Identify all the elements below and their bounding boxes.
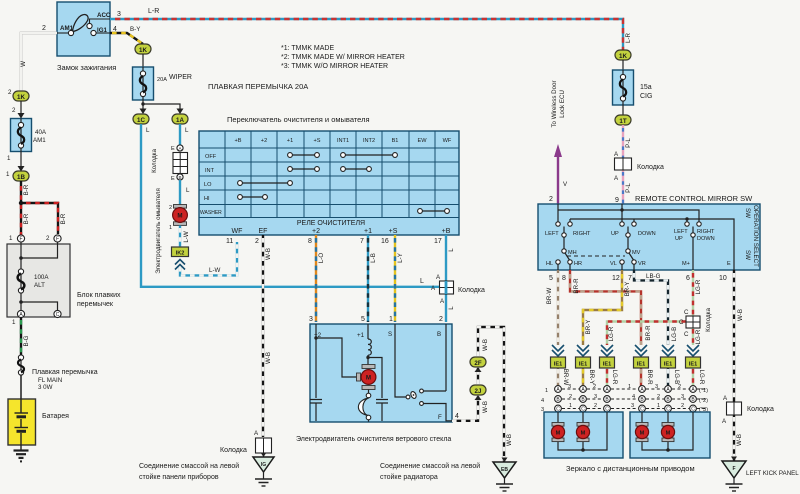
svg-text:16: 16 <box>381 238 389 245</box>
svg-text:E: E <box>171 146 175 152</box>
svg-text:1K: 1K <box>619 53 627 60</box>
svg-text:W-B: W-B <box>482 339 489 351</box>
svg-text:*2: TMMK MADE W/ MIRROR HEATER: *2: TMMK MADE W/ MIRROR HEATER <box>281 54 405 61</box>
svg-text:9: 9 <box>615 197 619 204</box>
svg-text:8: 8 <box>562 275 566 282</box>
svg-text:17: 17 <box>434 238 442 245</box>
svg-text:40A: 40A <box>35 129 47 136</box>
svg-text:To Wireless Door: To Wireless Door <box>551 80 558 127</box>
svg-text:3: 3 <box>631 403 634 409</box>
svg-text:1C: 1C <box>137 117 145 124</box>
svg-text:HR: HR <box>574 261 582 267</box>
svg-text:2: 2 <box>657 394 660 400</box>
svg-text:1: 1 <box>9 235 13 242</box>
svg-text:Колодка: Колодка <box>151 149 158 173</box>
svg-text:C: C <box>679 319 684 326</box>
svg-text:+B: +B <box>235 138 242 144</box>
svg-text:РЕЛЕ ОЧИСТИТЕЛЯ: РЕЛЕ ОЧИСТИТЕЛЯ <box>297 220 365 227</box>
svg-text:1T: 1T <box>619 118 626 125</box>
svg-text:REMOTE CONTROL MIRROR SW: REMOTE CONTROL MIRROR SW <box>635 194 753 203</box>
svg-text:LG-B: LG-B <box>673 370 680 384</box>
svg-text:L-R: L-R <box>148 8 159 15</box>
svg-text:EW: EW <box>417 138 427 144</box>
svg-text:Соединение смассой на левой: Соединение смассой на левой <box>380 462 480 470</box>
svg-text:1: 1 <box>12 319 16 326</box>
svg-text:5: 5 <box>549 275 553 282</box>
svg-text:1: 1 <box>7 155 11 162</box>
svg-text:2: 2 <box>12 107 16 114</box>
svg-text:INT: INT <box>205 168 215 174</box>
svg-text:2: 2 <box>569 394 572 400</box>
svg-text:2: 2 <box>42 25 46 32</box>
svg-text:P-L: P-L <box>625 183 632 193</box>
svg-text:3: 3 <box>594 394 597 400</box>
svg-text:+1: +1 <box>364 228 372 235</box>
svg-text:B: B <box>437 331 441 338</box>
svg-text:LG-R: LG-R <box>611 370 618 385</box>
svg-text:4: 4 <box>113 26 117 33</box>
svg-text:L-R: L-R <box>625 32 632 43</box>
svg-text:7: 7 <box>360 238 364 245</box>
svg-text:1: 1 <box>6 171 10 178</box>
svg-text:4: 4 <box>632 394 635 400</box>
svg-text:стойке радиатора: стойке радиатора <box>380 473 438 481</box>
svg-text:VL: VL <box>610 261 617 267</box>
svg-text:+B: +B <box>442 228 451 235</box>
svg-text:3: 3 <box>655 384 658 390</box>
svg-text:Lock ECU: Lock ECU <box>559 90 566 118</box>
svg-text:UP: UP <box>611 231 619 237</box>
svg-text:2: 2 <box>255 238 259 245</box>
svg-text:M: M <box>556 431 561 437</box>
svg-text:L-W: L-W <box>209 267 221 274</box>
svg-text:3: 3 <box>117 11 121 18</box>
svg-text:(*2): (*2) <box>699 398 708 404</box>
svg-text:DOWN: DOWN <box>638 231 656 237</box>
svg-text:1B: 1B <box>17 174 25 181</box>
svg-text:WF: WF <box>232 228 243 235</box>
svg-text:стойке панели приборов: стойке панели приборов <box>139 473 219 481</box>
svg-text:12: 12 <box>612 275 620 282</box>
svg-text:MH: MH <box>568 250 577 256</box>
svg-text:L: L <box>448 306 455 310</box>
svg-text:Плавкая перемычка: Плавкая перемычка <box>32 369 98 376</box>
svg-text:2: 2 <box>681 403 684 409</box>
svg-text:BR-Y: BR-Y <box>588 370 595 385</box>
svg-text:L: L <box>448 248 455 252</box>
svg-text:HI: HI <box>204 196 210 202</box>
svg-text:2: 2 <box>594 403 597 409</box>
svg-text:10: 10 <box>719 275 727 282</box>
svg-text:L: L <box>186 187 190 194</box>
svg-text:IG: IG <box>261 462 266 468</box>
svg-text:2J: 2J <box>475 388 482 395</box>
svg-text:W: W <box>20 61 27 67</box>
svg-text:2: 2 <box>169 205 172 211</box>
svg-text:2: 2 <box>439 316 443 323</box>
svg-text:Колодка: Колодка <box>705 308 712 332</box>
svg-text:1K: 1K <box>17 94 25 101</box>
svg-text:11: 11 <box>226 238 233 245</box>
svg-text:HL: HL <box>546 261 553 267</box>
svg-text:1A: 1A <box>176 117 184 124</box>
svg-text:FL MAIN: FL MAIN <box>38 377 62 384</box>
svg-text:WIPER: WIPER <box>169 74 192 81</box>
svg-text:3: 3 <box>681 394 684 400</box>
svg-text:ПЛАВКАЯ ПЕРЕМЫЧКА 20А: ПЛАВКАЯ ПЕРЕМЫЧКА 20А <box>208 82 308 91</box>
svg-text:DOWN: DOWN <box>697 236 715 242</box>
svg-text:перемычек: перемычек <box>77 301 114 308</box>
svg-text:M+: M+ <box>682 261 690 267</box>
svg-text:EF: EF <box>259 228 268 235</box>
svg-text:BR-W: BR-W <box>546 288 553 305</box>
svg-text:ACC: ACC <box>97 12 111 19</box>
svg-text:B-Y: B-Y <box>130 26 140 33</box>
svg-text:W-B: W-B <box>265 352 272 364</box>
svg-text:SW: SW <box>744 250 751 260</box>
svg-text:RIGHT: RIGHT <box>573 231 591 237</box>
svg-text:2: 2 <box>46 235 50 242</box>
svg-text:LEFT: LEFT <box>545 231 559 237</box>
svg-text:W-B: W-B <box>737 309 744 321</box>
svg-text:6: 6 <box>686 275 690 282</box>
svg-text:1: 1 <box>389 316 393 323</box>
svg-text:1K: 1K <box>139 47 147 54</box>
svg-text:L-B: L-B <box>370 253 377 263</box>
svg-text:BR-Y: BR-Y <box>624 282 631 297</box>
svg-text:W-B: W-B <box>482 401 489 413</box>
svg-text:B1: B1 <box>392 138 399 144</box>
svg-text:Зеркало с дистанционным привод: Зеркало с дистанционным приводом <box>566 464 695 473</box>
svg-text:BR-W: BR-W <box>562 369 569 386</box>
svg-text:IE1: IE1 <box>637 362 645 368</box>
svg-text:+S: +S <box>314 138 321 144</box>
svg-text:RIGHT: RIGHT <box>697 229 715 235</box>
svg-text:Переключатель очистителя и омы: Переключатель очистителя и омывателя <box>227 115 370 124</box>
svg-text:C: C <box>56 312 60 318</box>
svg-text:2: 2 <box>593 384 596 390</box>
svg-text:L: L <box>420 278 424 285</box>
svg-text:4: 4 <box>455 413 459 420</box>
svg-text:7: 7 <box>628 275 632 282</box>
svg-text:L-Y: L-Y <box>397 253 404 263</box>
svg-text:L: L <box>185 127 189 134</box>
svg-text:20A: 20A <box>157 77 167 83</box>
svg-text:1: 1 <box>545 388 548 394</box>
svg-text:3 0W: 3 0W <box>38 384 53 391</box>
svg-text:*1: TMMK MADE: *1: TMMK MADE <box>281 45 334 52</box>
svg-text:LG-R: LG-R <box>695 329 702 344</box>
svg-text:W-B: W-B <box>265 248 272 260</box>
svg-text:W-B: W-B <box>736 434 743 446</box>
svg-text:B: B <box>178 175 181 180</box>
svg-text:E: E <box>171 176 175 182</box>
svg-text:OFF: OFF <box>205 154 217 160</box>
svg-text:+2: +2 <box>312 228 320 235</box>
svg-text:Колодка: Колодка <box>458 287 485 294</box>
svg-text:MV: MV <box>632 250 641 256</box>
svg-text:B-R: B-R <box>23 184 30 195</box>
svg-text:C: C <box>684 309 689 316</box>
svg-text:+2: +2 <box>261 138 267 144</box>
svg-text:Колодка: Колодка <box>637 164 664 171</box>
svg-text:B-G: B-G <box>23 335 30 346</box>
svg-text:WF: WF <box>443 138 452 144</box>
svg-text:2: 2 <box>8 89 12 96</box>
svg-text:IE1: IE1 <box>554 362 562 368</box>
svg-text:BR-Y: BR-Y <box>585 320 592 335</box>
svg-text:2F: 2F <box>474 360 481 367</box>
svg-text:4: 4 <box>541 398 544 404</box>
svg-text:S: S <box>388 331 392 338</box>
svg-text:M: M <box>666 431 671 437</box>
svg-text:AM1: AM1 <box>33 137 46 144</box>
svg-text:LG-R: LG-R <box>695 279 702 294</box>
svg-text:L: L <box>146 127 150 134</box>
svg-text:BR-R: BR-R <box>573 278 580 294</box>
svg-text:+S: +S <box>389 228 398 235</box>
svg-text:Батарея: Батарея <box>42 413 69 420</box>
svg-text:1: 1 <box>628 384 631 390</box>
svg-text:B-R: B-R <box>23 213 30 224</box>
svg-text:Колодка: Колодка <box>747 406 774 413</box>
svg-text:IE1: IE1 <box>579 362 587 368</box>
svg-text:15a: 15a <box>640 84 652 91</box>
svg-text:F: F <box>56 237 59 243</box>
svg-text:LO: LO <box>204 182 212 188</box>
svg-text:100A: 100A <box>34 274 49 281</box>
svg-text:B-R: B-R <box>60 213 67 224</box>
svg-text:Электродвигатель очистителя ве: Электродвигатель очистителя ветрового ст… <box>296 436 451 443</box>
svg-text:1: 1 <box>169 225 172 231</box>
svg-text:3: 3 <box>309 316 313 323</box>
svg-text:UP: UP <box>675 236 683 242</box>
svg-text:+1: +1 <box>287 138 293 144</box>
svg-text:2: 2 <box>549 196 553 203</box>
svg-text:Замок зажигания: Замок зажигания <box>57 63 116 72</box>
svg-text:LB-G: LB-G <box>646 273 661 280</box>
svg-text:WASHER: WASHER <box>200 210 222 216</box>
svg-text:LG-R: LG-R <box>608 326 615 341</box>
svg-text:E: E <box>727 261 731 267</box>
svg-text:1: 1 <box>569 403 572 409</box>
svg-text:EB: EB <box>501 467 508 473</box>
svg-text:M: M <box>177 213 182 220</box>
svg-text:M: M <box>366 375 371 382</box>
svg-text:1: 1 <box>657 403 660 409</box>
svg-text:LEFT: LEFT <box>674 229 688 235</box>
svg-text:Колодка: Колодка <box>220 447 247 454</box>
svg-text:5: 5 <box>361 316 365 323</box>
svg-text:OPERATION SELECT: OPERATION SELECT <box>752 205 759 267</box>
svg-text:INT2: INT2 <box>363 138 375 144</box>
svg-text:(*1): (*1) <box>699 388 708 394</box>
svg-text:L-O: L-O <box>318 253 325 264</box>
svg-text:W-B: W-B <box>506 434 513 446</box>
svg-text:SW: SW <box>744 208 751 218</box>
svg-text:3: 3 <box>568 384 571 390</box>
svg-text:Блок плавких: Блок плавких <box>77 292 121 299</box>
svg-text:CIG: CIG <box>640 93 652 100</box>
svg-text:+1: +1 <box>357 332 365 339</box>
svg-text:P-L: P-L <box>625 138 632 148</box>
svg-text:BR-R: BR-R <box>645 325 652 341</box>
svg-text:L-W: L-W <box>183 231 190 243</box>
svg-text:VR: VR <box>638 261 646 267</box>
svg-text:LG-R: LG-R <box>698 370 705 385</box>
svg-text:IK2: IK2 <box>176 251 185 257</box>
svg-text:IE1: IE1 <box>603 362 611 368</box>
svg-text:INT1: INT1 <box>337 138 349 144</box>
svg-text:M: M <box>581 431 586 437</box>
svg-text:C: C <box>684 331 689 338</box>
svg-text:LG-B: LG-B <box>671 327 678 341</box>
svg-text:8: 8 <box>308 238 312 245</box>
svg-text:ALT: ALT <box>34 282 45 289</box>
svg-text:F: F <box>438 414 442 421</box>
svg-text:2: 2 <box>678 384 681 390</box>
svg-text:F: F <box>732 466 735 472</box>
svg-text:IE1: IE1 <box>689 362 697 368</box>
svg-text:Соединение смассой на левой: Соединение смассой на левой <box>139 462 239 470</box>
svg-text:LEFT KICK PANEL: LEFT KICK PANEL <box>746 470 799 477</box>
svg-text:F: F <box>19 237 22 243</box>
svg-text:*3: TMMK W/O MIRROR HEATER: *3: TMMK W/O MIRROR HEATER <box>281 63 388 70</box>
svg-text:BR-R: BR-R <box>646 369 653 385</box>
svg-text:Электродвигатель омывателя: Электродвигатель омывателя <box>155 188 162 274</box>
svg-text:M: M <box>640 431 645 437</box>
svg-text:IE1: IE1 <box>664 362 672 368</box>
